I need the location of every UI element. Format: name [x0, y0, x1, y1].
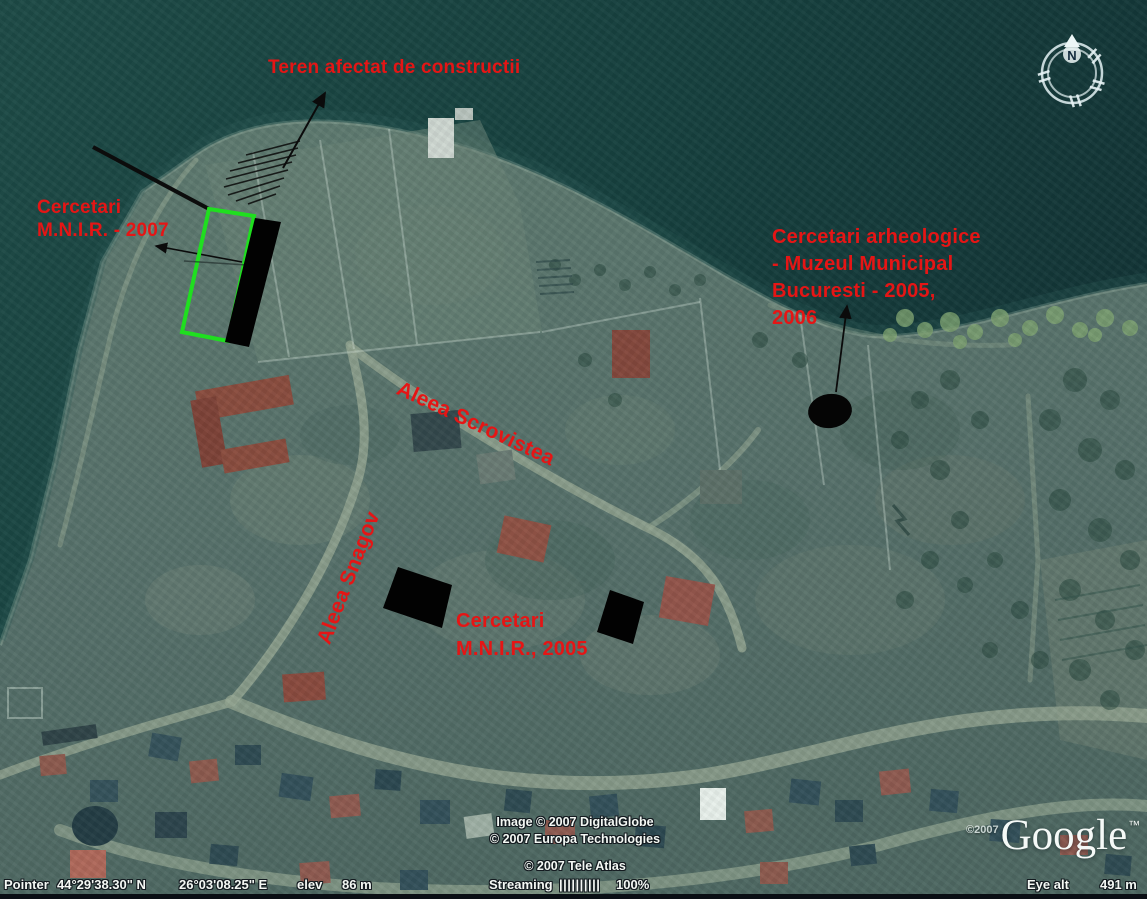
google-logo: Google	[1001, 814, 1128, 857]
streaming-progress-bars: ||||||||||	[559, 877, 600, 892]
map-attribution: © 2007 Tele Atlas	[434, 858, 716, 875]
construction-area-label: Teren afectat de constructii	[268, 57, 520, 79]
mnir-2007-line1: Cercetari	[37, 196, 169, 219]
pointer-longitude: 26°03'08.25" E	[179, 877, 267, 892]
mnir-2005-line2: M.N.I.R., 2005	[456, 635, 588, 663]
annotation-overlay	[0, 0, 1147, 899]
attribution-teleatlas: © 2007 Tele Atlas	[434, 858, 716, 875]
streaming-percent: 100%	[616, 877, 649, 892]
museum-bucharest-label: Cercetari arheologice - Muzeul Municipal…	[772, 224, 981, 332]
excavation-2005-black-rect-west	[383, 567, 452, 628]
excavation-2005-black-rect-east	[597, 590, 644, 644]
google-earth-viewport[interactable]: Teren afectat de constructii Cercetari M…	[0, 0, 1147, 899]
museum-line1: Cercetari arheologice	[772, 224, 981, 251]
google-trademark: ™	[1128, 818, 1140, 832]
window-bottom-edge	[0, 894, 1147, 899]
eye-altitude-label: Eye alt	[1027, 877, 1069, 892]
elevation-label: elev	[297, 877, 322, 892]
attribution-digitalglobe: Image © 2007 DigitalGlobe	[434, 814, 716, 831]
elevation-value: 86 m	[342, 877, 372, 892]
museum-line2: - Muzeul Municipal	[772, 251, 981, 278]
excavation-museum-black-ellipse	[806, 391, 854, 431]
compass-north-letter: N	[1067, 48, 1076, 63]
mnir-2007-label: Cercetari M.N.I.R. - 2007	[37, 196, 169, 242]
mnir-2005-label: Cercetari M.N.I.R., 2005	[456, 607, 588, 663]
museum-line3: Bucuresti - 2005,	[772, 278, 981, 305]
excavation-2007-black-rect	[225, 218, 281, 347]
attribution-europa: © 2007 Europa Technologies	[434, 831, 716, 848]
mnir-2007-line2: M.N.I.R. - 2007	[37, 219, 169, 242]
imagery-attribution: Image © 2007 DigitalGlobe © 2007 Europa …	[434, 814, 716, 848]
mnir-2005-line1: Cercetari	[456, 607, 588, 635]
pointer-latitude: 44°29'38.30" N	[57, 877, 146, 892]
compass-icon[interactable]: N	[1032, 33, 1112, 113]
eye-altitude-value: 491 m	[1100, 877, 1137, 892]
arrow-to-construction-label	[283, 93, 325, 168]
google-watermark: ©2007 Google ™	[966, 814, 1140, 857]
museum-line4: 2006	[772, 305, 981, 332]
status-bar: Pointer 44°29'38.30" N 26°03'08.25" E el…	[0, 877, 1147, 894]
google-watermark-year: ©2007	[966, 824, 999, 836]
streaming-label: Streaming	[489, 877, 553, 892]
hatched-construction-area	[224, 141, 300, 204]
pointer-label: Pointer	[4, 877, 49, 892]
